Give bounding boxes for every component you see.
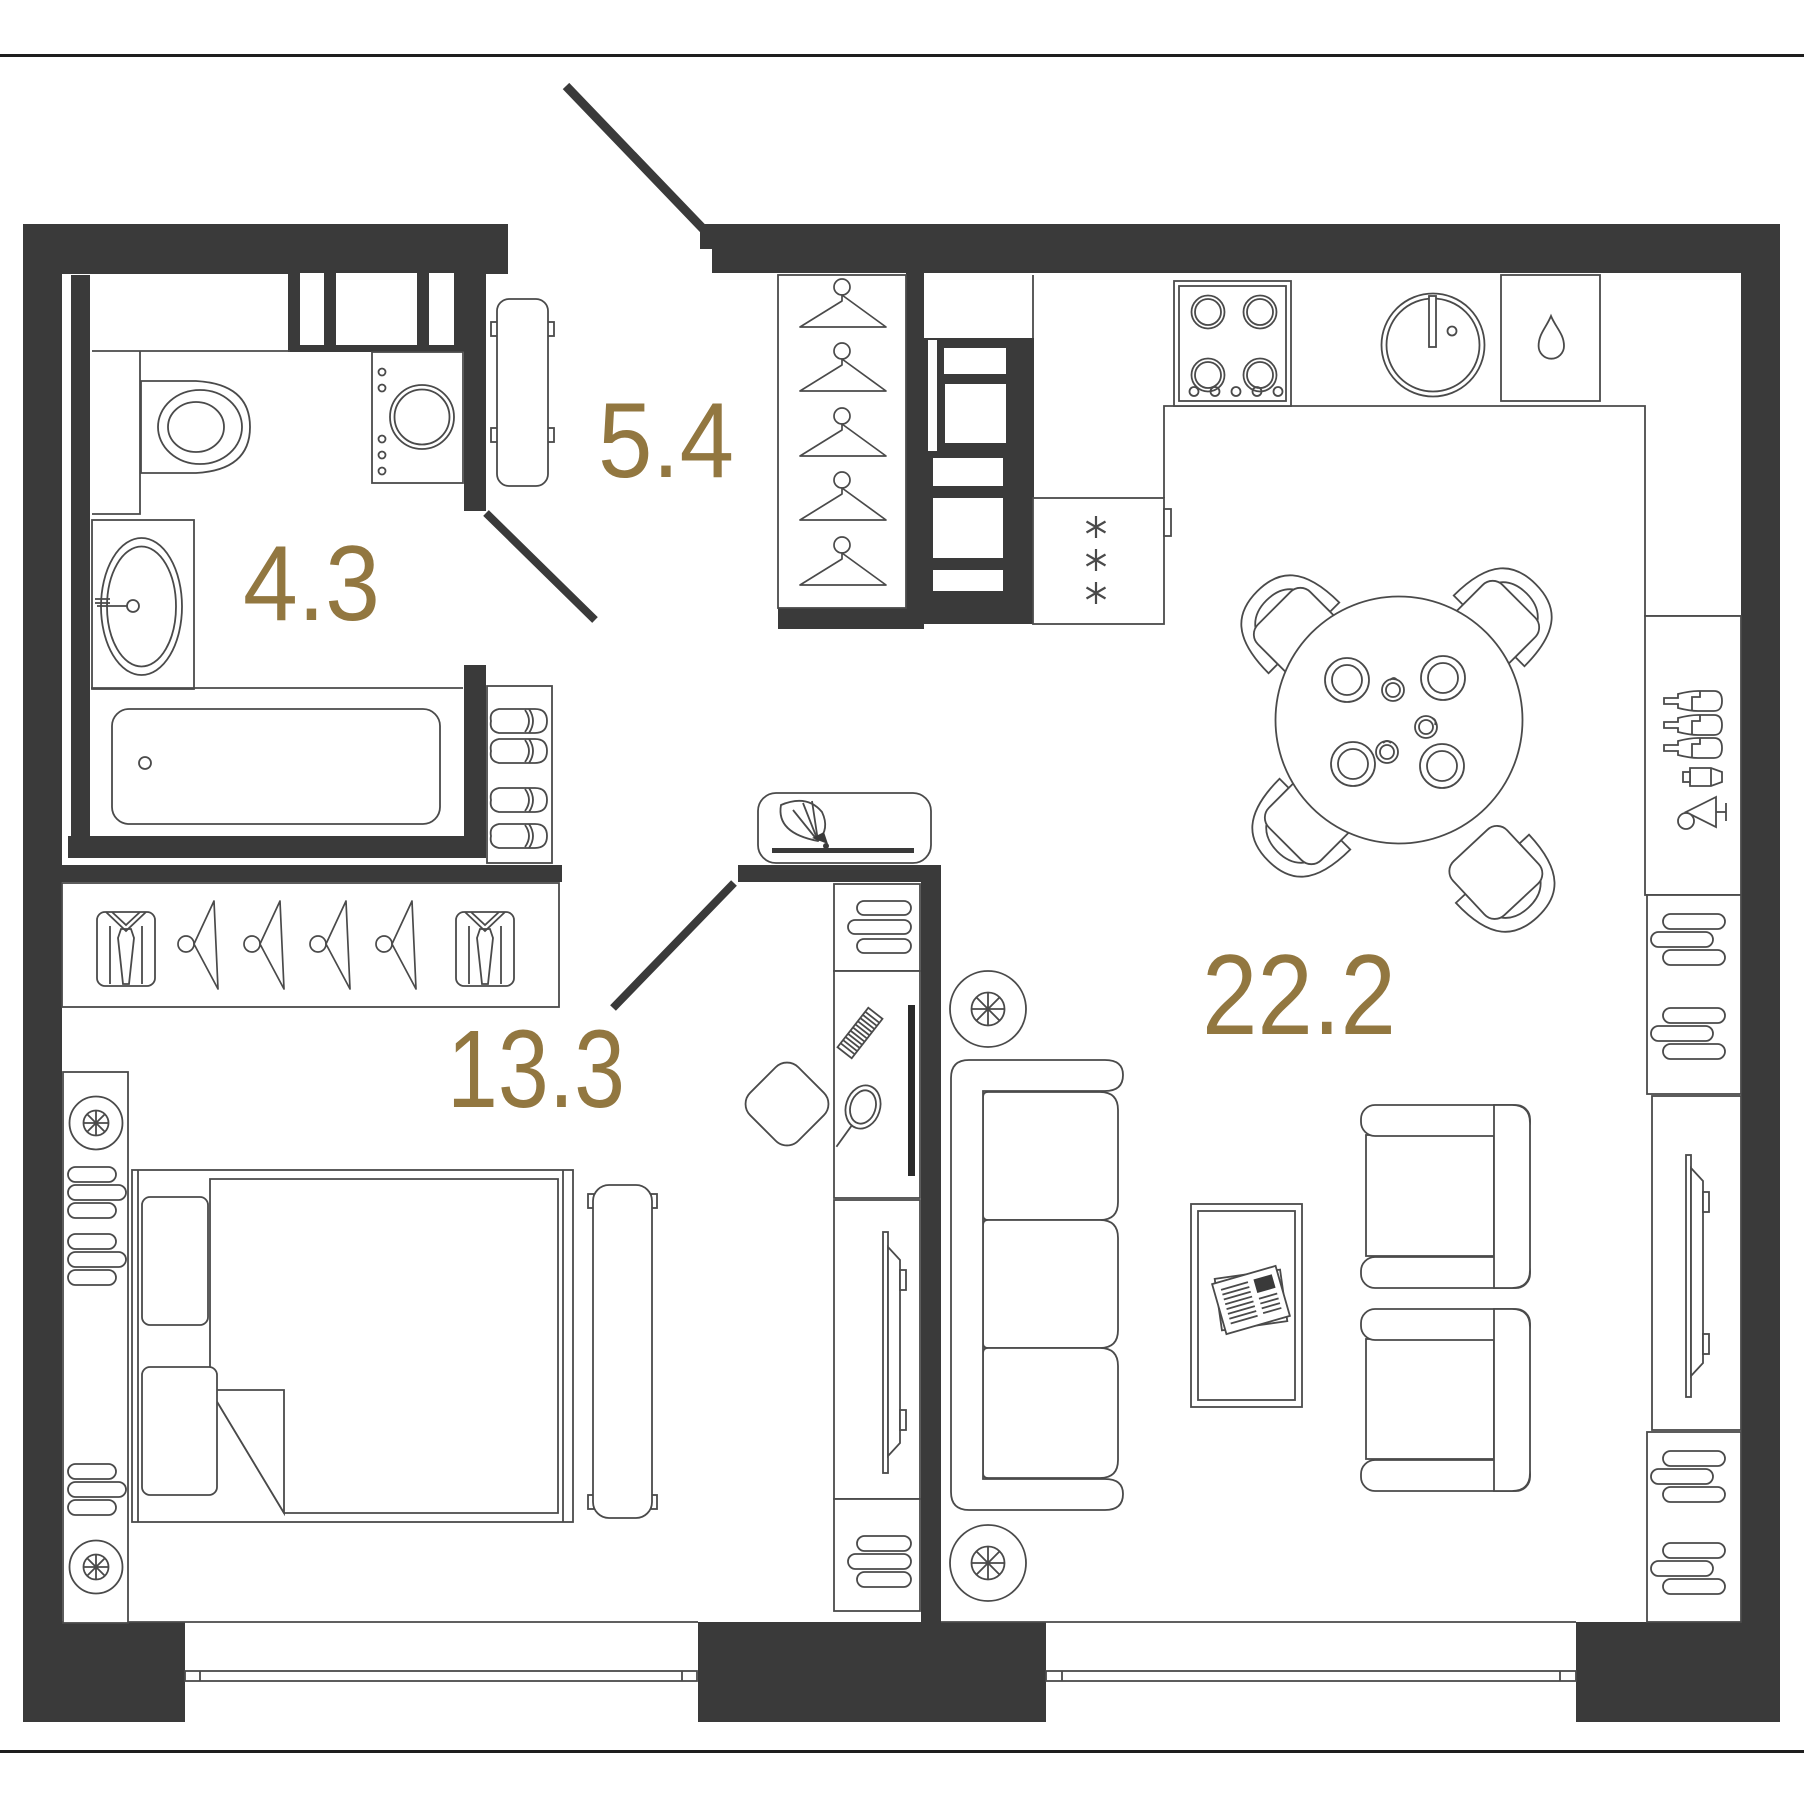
svg-text:13.3: 13.3	[447, 1008, 625, 1131]
svg-text:22.2: 22.2	[1202, 932, 1396, 1059]
svg-text:4.3: 4.3	[243, 523, 380, 643]
svg-text:5.4: 5.4	[598, 380, 734, 500]
